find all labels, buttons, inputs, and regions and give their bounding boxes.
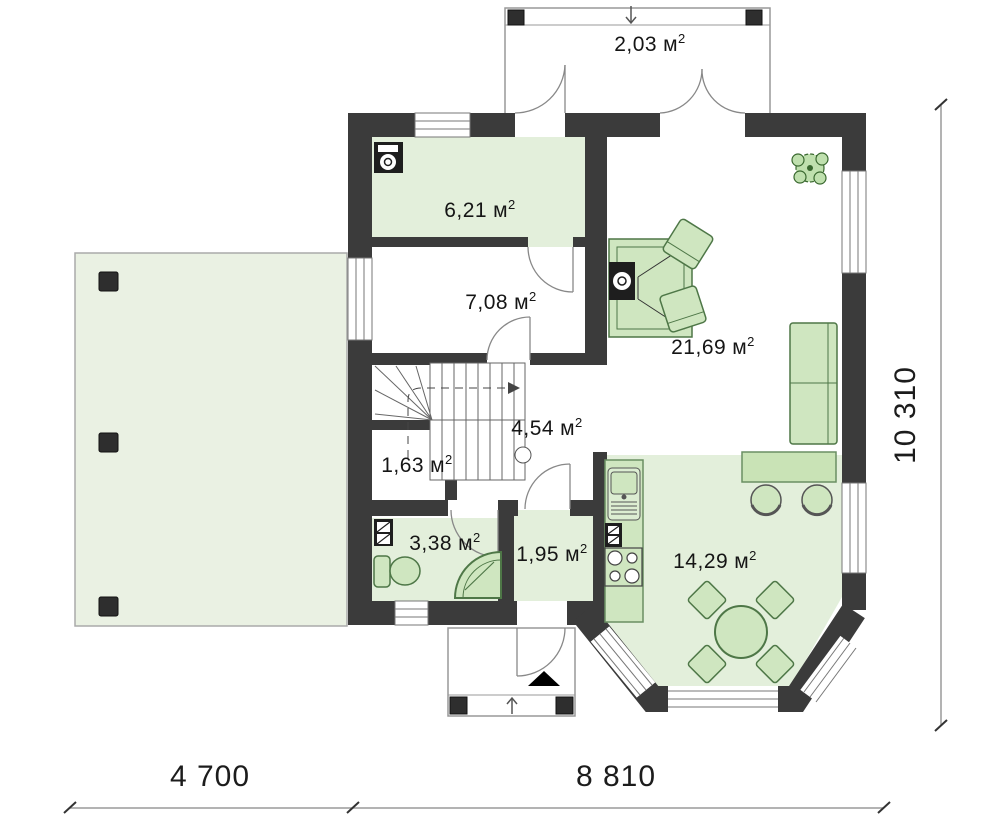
window-top (415, 113, 470, 137)
dining-table (715, 606, 767, 658)
area-label-closet: 1,63м2 (381, 454, 453, 478)
living-room-furniture (609, 153, 837, 444)
area-label-stair-hall: 4,54м2 (511, 417, 583, 441)
window-bay-bottom (668, 686, 778, 712)
stove (605, 548, 642, 586)
area-label-utility: 6,21м2 (444, 199, 516, 223)
area-label-vestibule: 1,95м2 (516, 543, 588, 567)
floor-plan: 2,03м2 6,21м2 7,08м2 4,54м2 1,63м2 3,38м… (0, 0, 1000, 822)
plant-icon (792, 153, 828, 184)
door-hall-stairs (487, 317, 530, 360)
window-right-kitchen (842, 483, 866, 573)
area-label-kitchen-dining: 14,29м2 (673, 550, 757, 574)
washing-machine-icon (374, 519, 393, 546)
area-label-hallway: 7,08м2 (465, 291, 537, 315)
dimension-line-bottom (64, 802, 890, 813)
kitchen-sink (608, 468, 640, 520)
dimension-line-right (935, 99, 947, 731)
floor-plan-drawing (0, 0, 1000, 822)
window-left-terrace (348, 258, 372, 340)
bar-counter (742, 452, 836, 482)
window-bottom-bath (395, 601, 428, 625)
dimension-bottom-right: 8 810 (576, 760, 656, 794)
window-right-living (842, 171, 866, 273)
dimension-bottom-left: 4 700 (170, 760, 250, 794)
boiler-icon (374, 142, 403, 173)
area-label-porch: 2,03м2 (614, 33, 686, 57)
area-label-living-room: 21,69м2 (671, 336, 755, 360)
terrace (75, 253, 347, 626)
newel-post (515, 447, 531, 463)
top-porch (505, 6, 770, 115)
sofa (790, 323, 837, 444)
area-label-bathroom: 3,38м2 (409, 532, 481, 556)
door-vestibule (525, 464, 570, 509)
bottom-stoop (448, 628, 575, 716)
oven-icon (605, 523, 622, 547)
dimension-right-side: 10 310 (889, 366, 923, 464)
door-utility-hall (528, 247, 573, 292)
winder-treads (375, 366, 432, 420)
toilet (374, 556, 420, 587)
